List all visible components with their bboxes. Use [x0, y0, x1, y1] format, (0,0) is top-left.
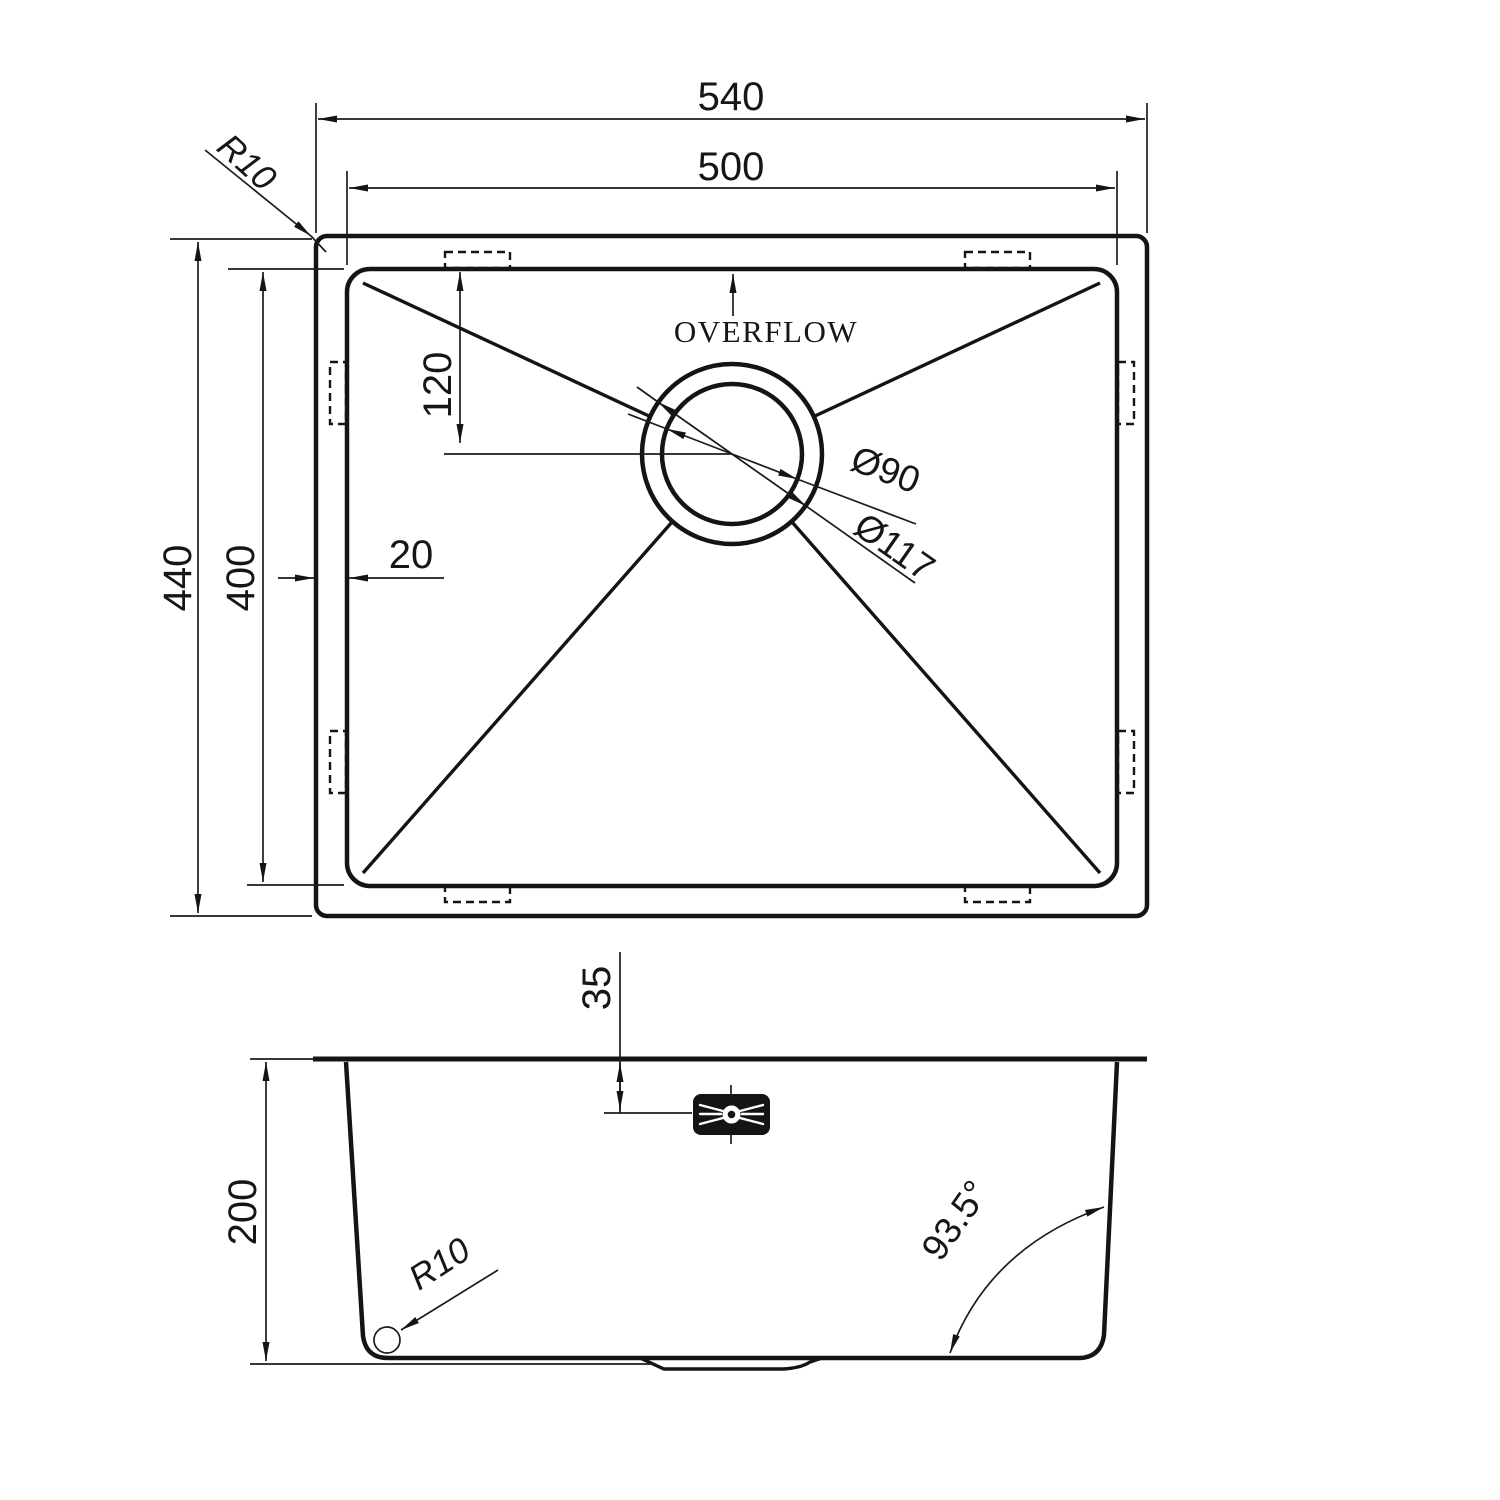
dim-500: 500 — [347, 145, 1117, 265]
dim-500-label: 500 — [698, 145, 765, 189]
dim-440-label: 440 — [156, 545, 200, 612]
radius-label-top: R10 — [210, 126, 284, 198]
dim-200: 200 — [221, 1062, 266, 1361]
wall-angle-callout: 93.5° — [914, 1173, 1104, 1353]
radius-callout-top: R10 — [205, 126, 326, 252]
mounting-clips — [330, 252, 1134, 902]
wall-angle-label: 93.5° — [914, 1173, 997, 1268]
dim-20: 20 — [278, 533, 444, 578]
radius-label-side: R10 — [402, 1230, 478, 1298]
dim-120-label: 120 — [416, 352, 460, 419]
dim-200-label: 200 — [221, 1179, 265, 1246]
overflow-port-symbol — [693, 1085, 770, 1144]
bowl-outline — [347, 269, 1117, 886]
dim-drain-outer-label: Ø117 — [847, 505, 942, 589]
dim-400: 400 — [219, 269, 344, 885]
dim-35: 35 — [575, 952, 692, 1113]
bowl-slope-diagonals — [363, 283, 1100, 873]
overflow-label: OVERFLOW — [674, 314, 858, 349]
sink-technical-drawing: 540 500 440 400 120 — [0, 0, 1500, 1500]
top-view: 540 500 440 400 120 — [156, 75, 1147, 916]
radius-callout-side: R10 — [374, 1230, 498, 1353]
drawing-canvas: 540 500 440 400 120 — [0, 0, 1500, 1500]
dim-540-label: 540 — [698, 75, 765, 119]
dim-400-label: 400 — [219, 545, 263, 612]
dim-20-label: 20 — [389, 533, 434, 577]
overflow-annotation: OVERFLOW — [674, 274, 858, 349]
side-view: 200 35 R10 — [221, 952, 1147, 1369]
dim-35-label: 35 — [575, 966, 619, 1011]
dim-120: 120 — [416, 272, 732, 454]
dim-drain-inner-label: Ø90 — [846, 438, 926, 501]
